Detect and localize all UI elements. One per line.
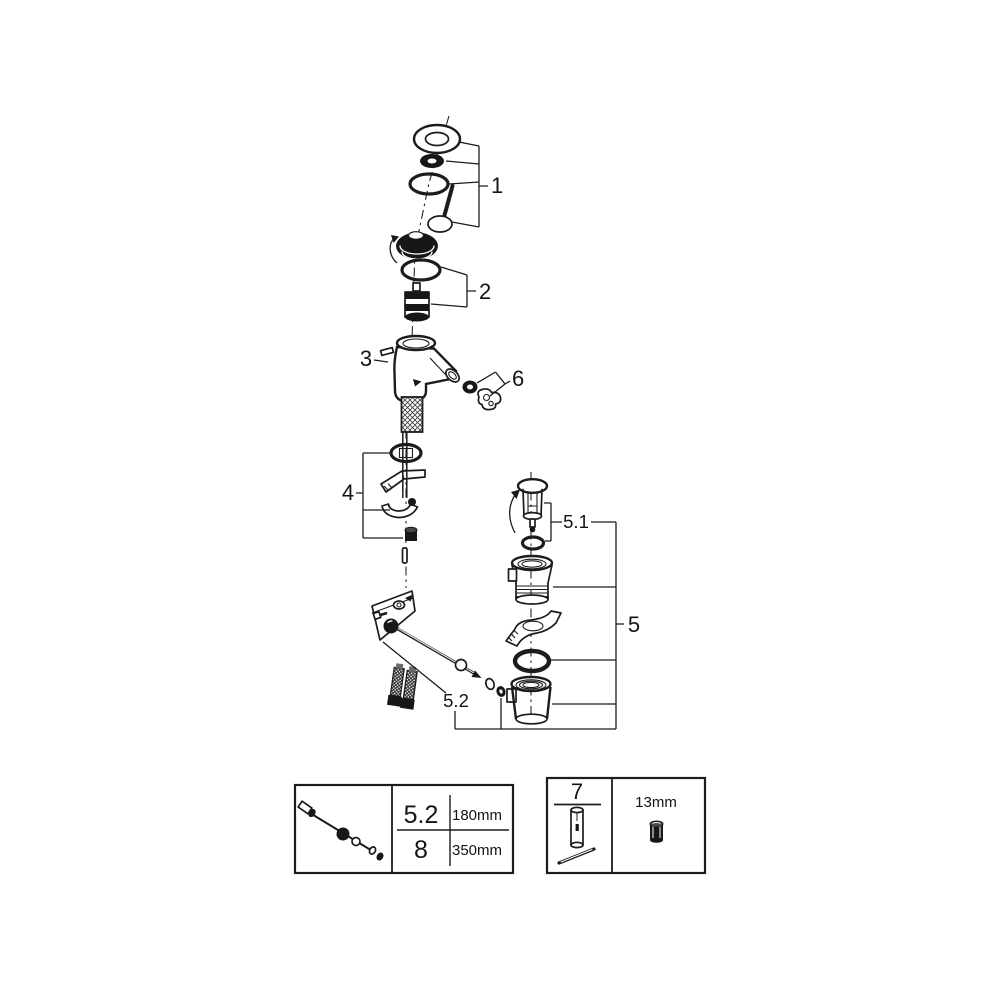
part6-aerator-group xyxy=(463,381,501,410)
callout-3-label: 3 xyxy=(360,346,372,371)
part3-faucet-body xyxy=(381,336,462,432)
callout-6-label: 6 xyxy=(512,366,524,391)
callout-4-lines xyxy=(356,453,403,538)
supply-hoses xyxy=(387,663,419,710)
part2-cartridge-group xyxy=(390,232,440,322)
diagram-canvas: 1 2 3 xyxy=(0,0,1000,1000)
length-table: 5.2 180mm 8 350mm xyxy=(295,785,513,873)
tool-size-label: 13mm xyxy=(635,794,677,811)
callout-52-lines xyxy=(383,642,616,729)
tool-table: 7 13mm xyxy=(547,778,705,873)
nut-thumbnail xyxy=(650,821,663,843)
callout-4-label: 4 xyxy=(342,480,354,505)
part1-cap-and-lever-group xyxy=(410,125,460,232)
tool-ref-label: 7 xyxy=(571,779,583,804)
horseshoe-clamp xyxy=(382,504,418,518)
body-lever-pin xyxy=(381,348,394,356)
length-row2-value: 350mm xyxy=(452,842,502,859)
callout-52-label: 5.2 xyxy=(443,690,469,711)
callout-2-label: 2 xyxy=(479,279,491,304)
length-row1-value: 180mm xyxy=(452,807,502,824)
pin xyxy=(403,548,408,563)
exploded-parts-diagram: 1 2 3 xyxy=(0,0,1000,1000)
callout-3-line xyxy=(374,360,388,362)
length-row2-ref: 8 xyxy=(414,836,428,864)
part51-popup-knob-group xyxy=(510,479,547,549)
callout-5-lines xyxy=(550,522,624,729)
callout-5-label: 5 xyxy=(628,612,640,637)
callout-51-label: 5.1 xyxy=(563,511,589,532)
threaded-shank xyxy=(402,397,423,432)
part4-mounting-group xyxy=(381,432,425,563)
callout-1-label: 1 xyxy=(491,173,503,198)
part5-drain-group xyxy=(506,556,561,724)
length-row1-ref: 5.2 xyxy=(404,801,439,829)
